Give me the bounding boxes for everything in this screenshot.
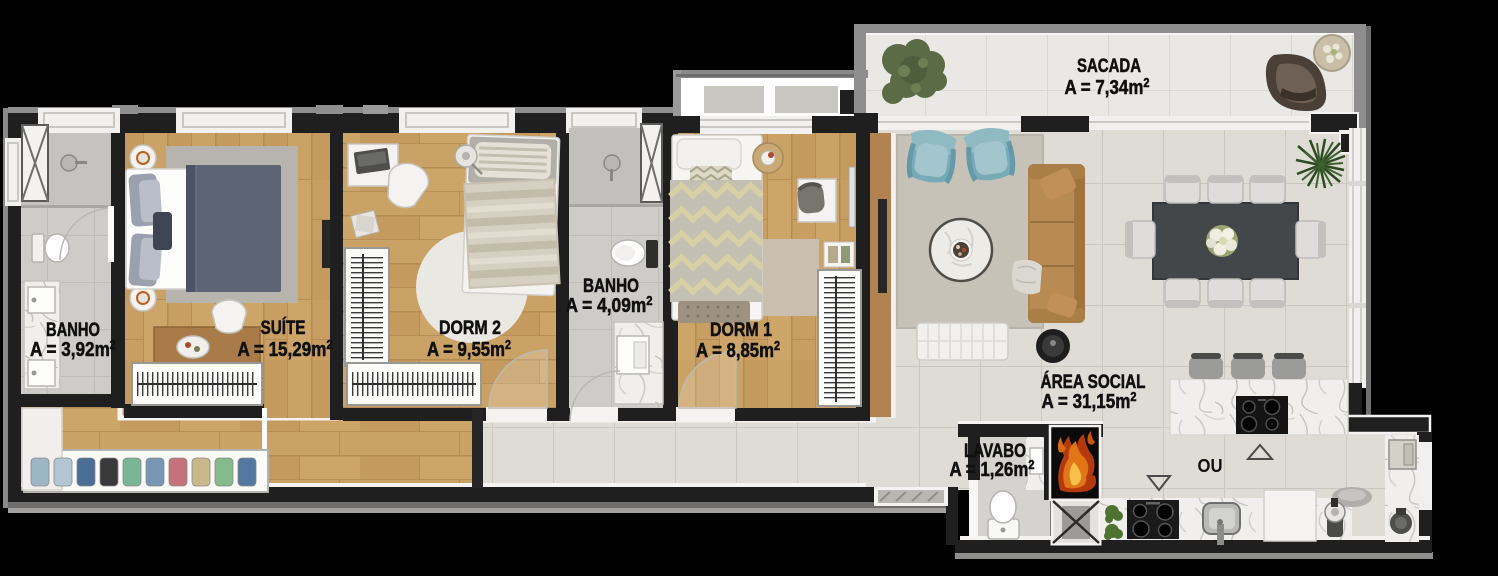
svg-text:A = 4,09m2: A = 4,09m2 <box>566 293 653 317</box>
svg-text:OU: OU <box>1198 456 1223 476</box>
svg-text:A = 15,29m2: A = 15,29m2 <box>238 337 333 361</box>
svg-text:A = 3,92m2: A = 3,92m2 <box>30 337 116 361</box>
svg-text:SUÍTE: SUÍTE <box>261 317 306 339</box>
svg-text:DORM 1: DORM 1 <box>710 320 772 341</box>
svg-text:A = 1,26m2: A = 1,26m2 <box>950 457 1035 481</box>
svg-text:A = 7,34m2: A = 7,34m2 <box>1065 75 1150 99</box>
svg-text:A = 31,15m2: A = 31,15m2 <box>1042 389 1137 413</box>
svg-text:BANHO: BANHO <box>583 276 639 297</box>
svg-text:DORM 2: DORM 2 <box>439 318 501 339</box>
svg-text:BANHO: BANHO <box>46 320 100 341</box>
svg-text:A = 9,55m2: A = 9,55m2 <box>427 337 511 361</box>
svg-text:SACADA: SACADA <box>1077 56 1141 77</box>
svg-text:A = 8,85m2: A = 8,85m2 <box>696 338 780 362</box>
